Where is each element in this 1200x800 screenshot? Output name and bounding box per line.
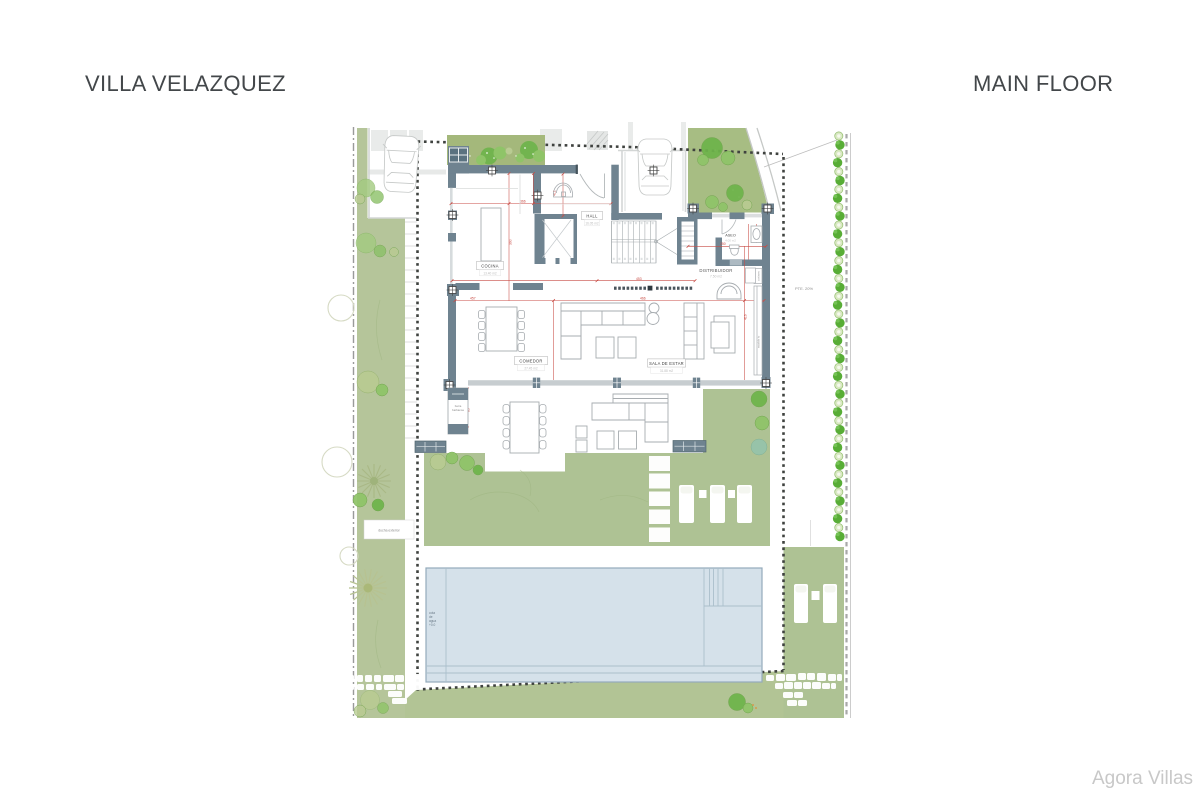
svg-text:453: 453 bbox=[636, 277, 642, 281]
svg-text:ASEO: ASEO bbox=[725, 234, 736, 238]
svg-text:ducha exterior: ducha exterior bbox=[378, 529, 400, 533]
svg-text:7.50 m2: 7.50 m2 bbox=[710, 275, 722, 279]
svg-text:mueble tv: mueble tv bbox=[757, 335, 761, 348]
svg-text:4.00 m2: 4.00 m2 bbox=[725, 238, 736, 242]
svg-text:PTE. 20%: PTE. 20% bbox=[795, 286, 813, 291]
svg-text:barbacoa: barbacoa bbox=[452, 408, 464, 412]
svg-text:390: 390 bbox=[509, 239, 513, 245]
svg-text:cortinero: cortinero bbox=[757, 270, 761, 281]
svg-text:31.88 m2: 31.88 m2 bbox=[660, 369, 674, 373]
svg-text:DISTRIBUIDOR: DISTRIBUIDOR bbox=[699, 268, 732, 273]
svg-text:+0.0: +0.0 bbox=[429, 623, 436, 627]
svg-text:466: 466 bbox=[640, 296, 646, 300]
svg-text:16.05 m2: 16.05 m2 bbox=[585, 221, 599, 225]
svg-text:13.40 m2: 13.40 m2 bbox=[483, 271, 497, 275]
svg-text:366: 366 bbox=[520, 199, 526, 203]
svg-text:SALA DE ESTAR: SALA DE ESTAR bbox=[649, 361, 684, 366]
svg-text:COCINA: COCINA bbox=[481, 264, 498, 269]
svg-text:457: 457 bbox=[470, 296, 476, 300]
svg-text:250: 250 bbox=[720, 242, 726, 246]
svg-text:416: 416 bbox=[743, 314, 747, 320]
svg-text:27.45 m2: 27.45 m2 bbox=[524, 366, 538, 370]
svg-text:COMEDOR: COMEDOR bbox=[519, 359, 542, 364]
svg-text:HALL: HALL bbox=[586, 214, 598, 219]
